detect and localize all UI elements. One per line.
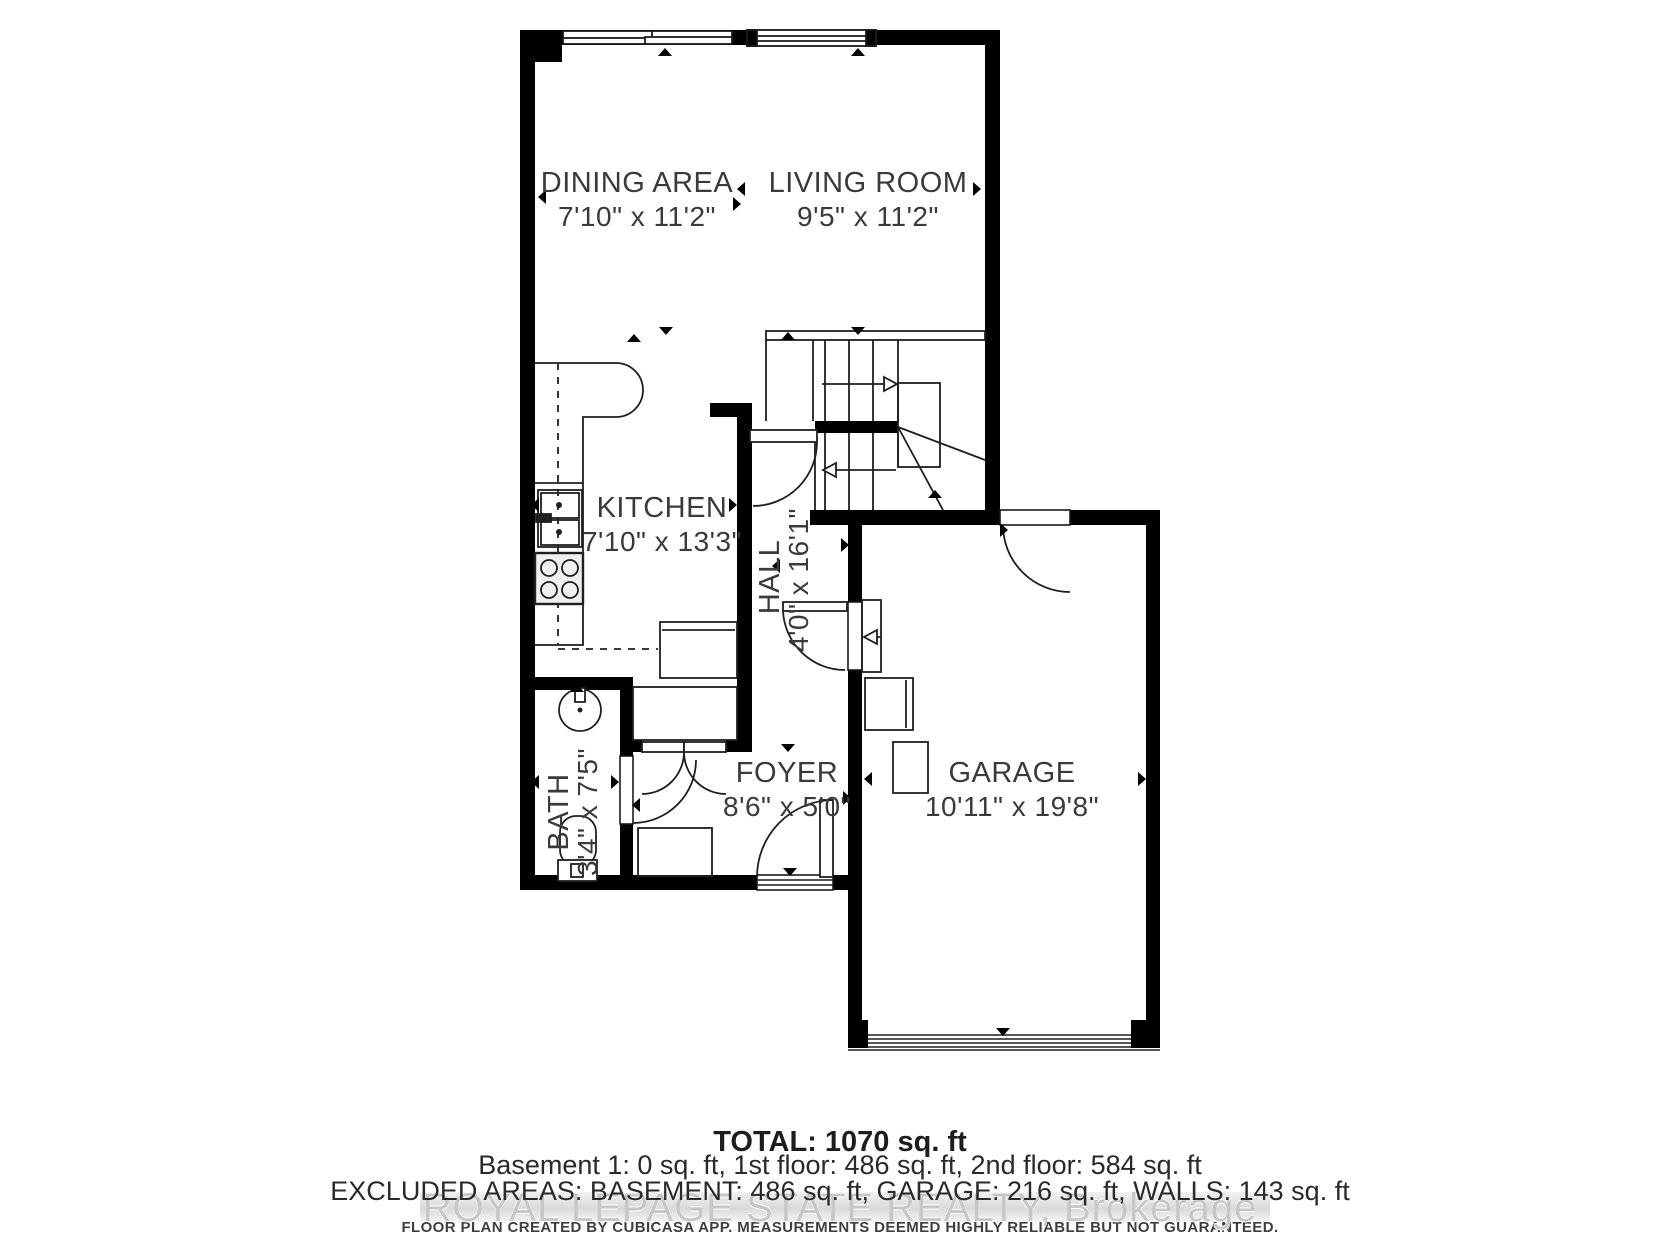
- bath-dims: 3'4" x 7'5": [572, 748, 603, 876]
- garage-dims: 10'11" x 19'8": [925, 791, 1099, 822]
- bath-sink: [559, 688, 601, 731]
- bath-name: BATH: [543, 773, 575, 850]
- garage-entry-opening: [848, 602, 862, 670]
- window-dining: [563, 31, 732, 44]
- room-label-hall: HALL 4'0" x 16'1": [754, 508, 814, 652]
- hall-top-door: [750, 430, 817, 506]
- dining-area-dims: 7'10" x 11'2": [558, 201, 716, 232]
- garage-name: GARAGE: [948, 757, 1075, 789]
- kitchen-name: KITCHEN: [597, 492, 728, 524]
- door-openings: [620, 510, 1070, 890]
- excluded-areas-text: EXCLUDED AREAS: BASEMENT: 486 sq. ft, GA…: [330, 1176, 1349, 1207]
- dining-area-name: DINING AREA: [541, 167, 734, 199]
- kitchen-sink: [536, 490, 582, 547]
- hall-name: HALL: [754, 540, 786, 615]
- room-label-foyer: FOYER 8'6" x 5'0": [723, 757, 851, 822]
- garage-entry-step: [862, 600, 881, 672]
- window-living: [747, 30, 876, 46]
- garage-man-door-opening: [1000, 510, 1070, 525]
- kitchen-dims: 7'10" x 13'3": [582, 526, 742, 557]
- bath-door-opening: [620, 756, 633, 824]
- garage-door: [848, 1035, 1160, 1050]
- foyer-closet: [633, 687, 737, 740]
- fridge: [660, 622, 737, 678]
- room-label-bath: BATH 3'4" x 7'5": [543, 748, 603, 876]
- room-label-dining-area: DINING AREA 7'10" x 11'2": [541, 167, 734, 232]
- floor-plan-canvas: DINING AREA 7'10" x 11'2" LIVING ROOM 9'…: [0, 0, 1680, 1260]
- room-label-living-room: LIVING ROOM 9'5" x 11'2": [769, 167, 968, 232]
- windows: [563, 30, 876, 46]
- hall-dims: 4'0" x 16'1": [783, 508, 814, 652]
- room-label-garage: GARAGE 10'11" x 19'8": [925, 757, 1099, 822]
- stove: [535, 553, 583, 604]
- foyer-dims: 8'6" x 5'0": [723, 791, 851, 822]
- foyer-name: FOYER: [736, 757, 838, 789]
- misc-fixtures: [633, 600, 1160, 1050]
- stairs: [766, 331, 985, 510]
- garage-equipment-2: [893, 742, 928, 793]
- living-room-name: LIVING ROOM: [769, 167, 968, 199]
- closet-double-doors: [642, 742, 726, 794]
- bath-door: [633, 760, 696, 823]
- floor-plan-page: DINING AREA 7'10" x 11'2" LIVING ROOM 9'…: [0, 0, 1680, 1260]
- living-room-dims: 9'5" x 11'2": [797, 201, 939, 232]
- garage-man-door: [1003, 525, 1070, 592]
- room-label-kitchen: KITCHEN 7'10" x 13'3": [582, 492, 742, 557]
- foyer-cabinet: [638, 828, 712, 876]
